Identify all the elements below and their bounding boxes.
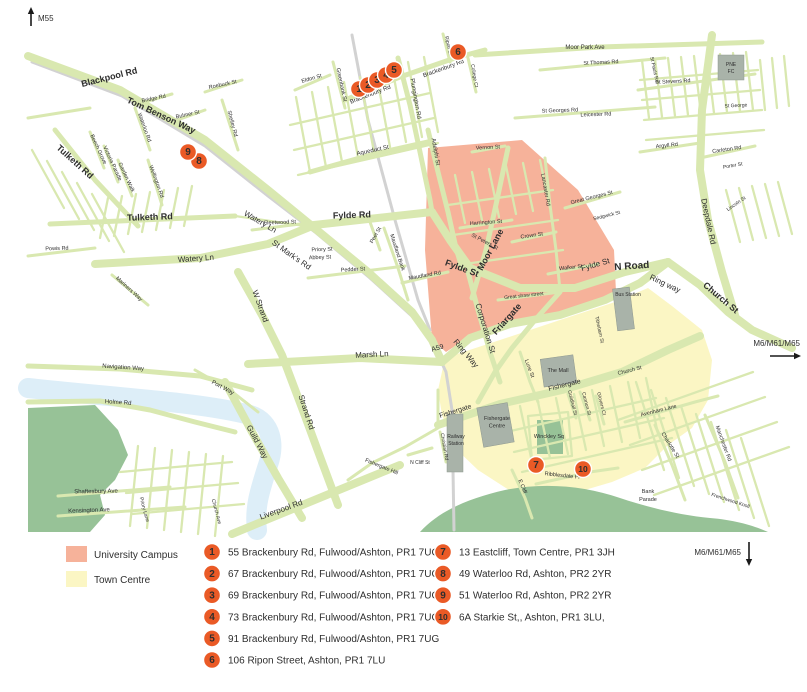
minor-street (739, 188, 753, 240)
minor-street (170, 188, 178, 228)
street-label: Fylde Rd (333, 209, 371, 220)
motorway-arrow-head (28, 7, 34, 14)
preston-street-map: Blackpool RdTom Benson WayTulketh RdTulk… (0, 0, 807, 692)
motorway-label: M55 (38, 14, 54, 23)
marker-2-number: 2 (209, 569, 215, 580)
building-label: Station (448, 441, 464, 447)
minor-street (752, 186, 766, 238)
motorway-label: M6/M61/M65 (753, 339, 800, 348)
street-label: St George (724, 102, 747, 109)
street-label: St Mark's Rd (270, 238, 312, 271)
legend-address: 49 Waterloo Rd, Ashton, PR2 2YR (459, 569, 612, 580)
motorway-label: M6/M61/M65 (694, 548, 741, 557)
legend-swatch-label: University Campus (94, 550, 178, 561)
street-label: Priory St (311, 247, 333, 254)
street-label: Church Ave (210, 499, 223, 526)
street-label: Parade (639, 497, 657, 503)
street-label: Powis Rd (45, 246, 68, 253)
legend: University CampusTown Centre155 Brackenb… (66, 544, 615, 669)
building-label: PNE (726, 62, 737, 68)
building-label: The Mall (547, 368, 568, 374)
street-label: Bank (642, 489, 655, 495)
minor-street (726, 190, 740, 242)
minor-street (741, 438, 769, 526)
marker-4-number: 4 (209, 612, 215, 623)
legend-address: 73 Brackenbury Rd, Fulwood/Ashton, PR1 7… (228, 612, 439, 623)
legend-swatch-0 (66, 546, 87, 562)
street-label: N Cliff St (410, 460, 430, 466)
marker-1-number: 1 (209, 547, 215, 558)
street-label: Leicester Rd (580, 111, 611, 118)
minor-street (296, 97, 310, 172)
street-label: Watery Ln (177, 253, 214, 265)
marker-5-number: 5 (209, 634, 215, 645)
minor-street (778, 182, 792, 234)
marker-3[interactable]: 3 (204, 587, 221, 604)
marker-6-number: 6 (209, 655, 215, 666)
minor-street (746, 52, 753, 110)
street-label: St Thomas Rd (583, 59, 618, 67)
legend-address: 13 Eastcliff, Town Centre, PR1 3JH (459, 548, 615, 559)
street-label: Deepdale Rd (699, 198, 718, 246)
marker-2[interactable]: 2 (204, 565, 221, 582)
marker-5[interactable]: 5 (204, 630, 221, 647)
minor-street (772, 58, 777, 108)
street-label: Mariners Way (114, 276, 143, 303)
legend-address: 69 Brackenbury Rd, Fulwood/Ashton, PR1 7… (228, 591, 439, 602)
street-label: Fleetwood St (264, 219, 297, 226)
marker-4[interactable]: 4 (204, 608, 221, 625)
marker-9[interactable]: 9 (435, 587, 452, 604)
legend-address: 106 Ripon Street, Ashton, PR1 7LU (228, 656, 385, 667)
marker-5-number: 5 (391, 65, 397, 76)
street-label: Waterloo Rd (136, 112, 152, 143)
motorway-arrow-head (746, 559, 752, 566)
street-label: Tulketh Rd (55, 143, 96, 181)
street-label: Ring way (648, 273, 682, 295)
minor-street (694, 56, 701, 114)
marker-9[interactable]: 9 (180, 144, 197, 161)
building-label: Railway (447, 434, 465, 440)
street-label: Roebuck St (208, 79, 238, 91)
marker-7-number: 7 (533, 460, 539, 471)
marker-10-number: 10 (578, 464, 588, 474)
marker-1[interactable]: 1 (204, 544, 221, 561)
street-label: Tulketh Rd (127, 211, 173, 223)
street-label: Sedgwick St (593, 210, 622, 223)
motorway-arrow-head (794, 353, 801, 359)
marker-10[interactable]: 10 (435, 608, 452, 625)
legend-address: 51 Waterloo Rd, Ashton, PR2 2YR (459, 591, 612, 602)
minor-street (32, 150, 64, 208)
building-label: FC (728, 69, 735, 75)
street-label: Moor Park Ave (565, 45, 605, 51)
minor-street (681, 57, 688, 115)
street-label: Marsh Ln (355, 349, 389, 360)
legend-address: 91 Brackenbury Rd, Fulwood/Ashton, PR1 7… (228, 634, 439, 645)
building-label: Fishergate (484, 416, 510, 422)
street-label: Argyll Rd (655, 142, 678, 150)
street-label: Abbey St (309, 255, 332, 262)
building-label: Bus Station (615, 292, 641, 298)
minor-street (181, 452, 189, 532)
legend-swatch-1 (66, 571, 87, 587)
legend-address: 55 Brackenbury Rd, Fulwood/Ashton, PR1 7… (228, 548, 439, 559)
street-label: Bulmer St (175, 109, 200, 120)
marker-9-number: 9 (185, 147, 191, 158)
street-label: Winckley Sq (534, 434, 564, 440)
street-label: Porter St (723, 161, 744, 170)
marker-10-number: 10 (438, 612, 448, 622)
street-label: Shelley Rd (226, 110, 239, 137)
legend-address: 67 Brackenbury Rd, Fulwood/Ashton, PR1 7… (228, 569, 439, 580)
marker-9-number: 9 (440, 590, 446, 601)
minor-street (298, 143, 438, 175)
minor-street (312, 92, 326, 167)
legend-swatch-label: Town Centre (94, 575, 151, 586)
minor-street (784, 56, 789, 106)
street-label: St Georges Rd (542, 107, 579, 114)
street-label: College Ct (469, 64, 479, 89)
marker-5[interactable]: 5 (386, 62, 403, 79)
minor-street (328, 87, 342, 162)
marker-7[interactable]: 7 (528, 457, 545, 474)
minor-street (765, 184, 779, 236)
marker-8-number: 8 (440, 569, 446, 580)
marker-10[interactable]: 10 (575, 461, 592, 478)
minor-street (47, 161, 79, 219)
marker-8-number: 8 (196, 156, 202, 167)
marker-7-number: 7 (440, 547, 446, 558)
map-page: Blackpool RdTom Benson WayTulketh RdTulk… (0, 0, 807, 692)
street-label: Bridge Rd (141, 94, 166, 105)
street-label: Frenchwood Knoll (710, 492, 750, 510)
minor-street (760, 60, 765, 110)
street-label: Shaftesbury Ave (74, 489, 118, 496)
marker-8[interactable]: 8 (435, 565, 452, 582)
legend-address: 6A Starkie St,, Ashton, PR1 3LU, (459, 612, 605, 623)
building-label: Centre (489, 424, 506, 430)
marker-6[interactable]: 6 (204, 652, 221, 669)
marker-3-number: 3 (209, 590, 215, 601)
marker-6[interactable]: 6 (450, 44, 467, 61)
marker-6-number: 6 (455, 47, 461, 58)
marker-7[interactable]: 7 (435, 544, 452, 561)
